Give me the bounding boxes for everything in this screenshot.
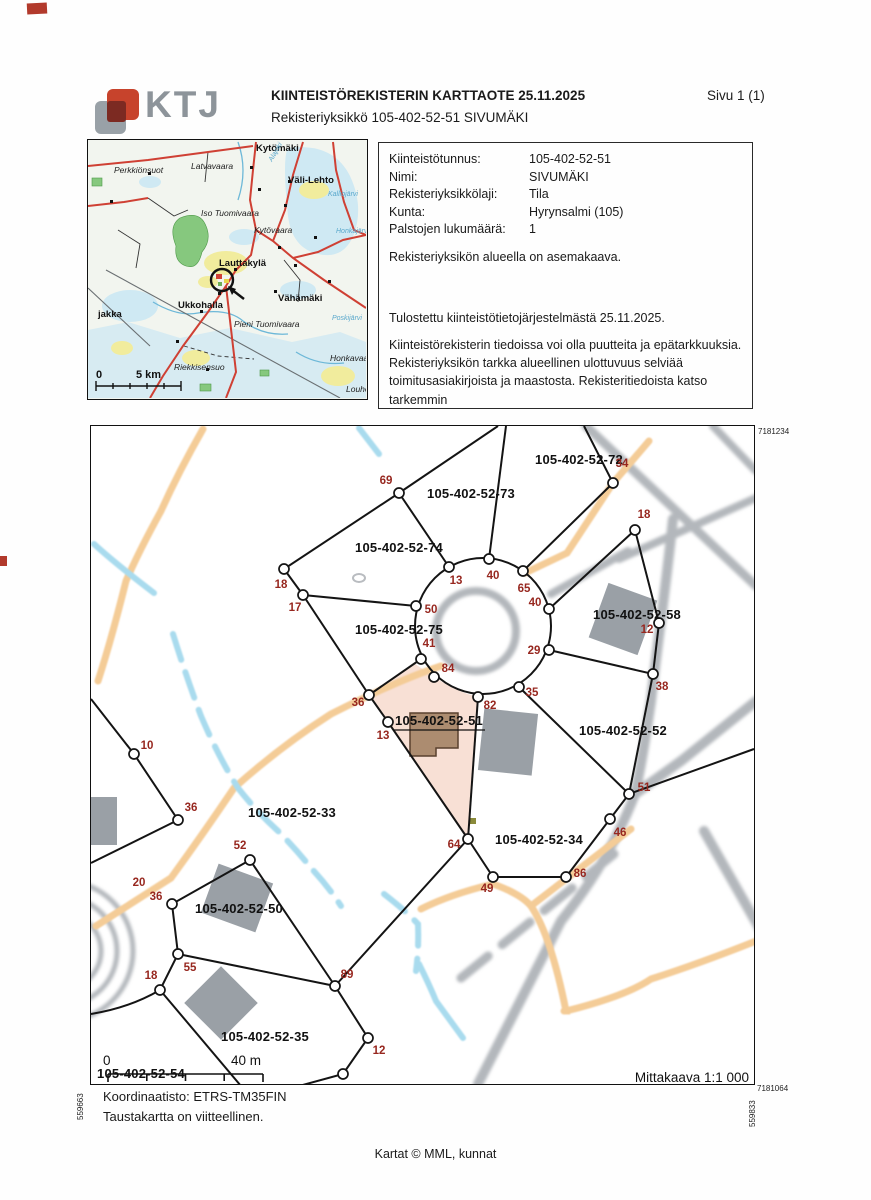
info-value: Hyrynsalmi (105) xyxy=(529,204,623,222)
overview-scale-label: 5 km xyxy=(136,369,161,381)
boundary-marker-number: 64 xyxy=(448,839,461,851)
info-value: Tila xyxy=(529,186,549,204)
cadastral-map: 0 40 m Mittakaava 1:1 000 105-402-52-721… xyxy=(90,425,755,1085)
info-label: Rekisteriyksikkölaji: xyxy=(389,186,529,204)
boundary-marker-number: 38 xyxy=(656,681,669,693)
boundary-marker-number: 40 xyxy=(529,597,542,609)
ktj-logo-overlap xyxy=(107,101,126,122)
boundary-marker-number: 18 xyxy=(275,579,288,591)
boundary-marker-number: 55 xyxy=(184,962,197,974)
place-label: Pieni Tuomivaara xyxy=(234,319,300,329)
info-label: Palstojen lukumäärä: xyxy=(389,221,529,239)
page-number: Sivu 1 (1) xyxy=(707,88,765,103)
building xyxy=(478,708,538,775)
map-credit: Kartat © MML, kunnat xyxy=(0,1147,871,1161)
disclaimer-line: Rekisteriyksikön tarkka alueellinen ulot… xyxy=(389,354,742,372)
info-row: Rekisteriyksikkölaji:Tila xyxy=(389,186,742,204)
boundary-marker-number: 46 xyxy=(614,827,627,839)
parcel-label: 105-402-52-72 xyxy=(535,452,623,467)
parcel-label: 105-402-52-50 xyxy=(195,901,283,916)
place-label: Lauttakylä xyxy=(219,258,267,269)
info-label: Kunta: xyxy=(389,204,529,222)
boundary-marker-number: 18 xyxy=(638,509,651,521)
boundary-marker-number: 17 xyxy=(289,602,302,614)
overview-map-canvas: 0 5 km KytömäkiVäli-LehtoLauttakyläUkkoh… xyxy=(88,140,366,398)
info-value: 1 xyxy=(529,221,536,239)
parcel-label: 105-402-52-75 xyxy=(355,622,443,637)
info-label: Kiinteistötunnus: xyxy=(389,151,529,169)
boundary-marker-number: 13 xyxy=(450,575,463,587)
place-label: Vähämäki xyxy=(278,293,322,304)
boundary-marker-number: 18 xyxy=(145,970,158,982)
boundary-marker-number: 49 xyxy=(481,883,494,895)
boundary-marker-number: 29 xyxy=(528,645,541,657)
property-info-rows: Kiinteistötunnus:105-402-52-51Nimi:SIVUM… xyxy=(389,151,742,239)
map-scale-ratio: Mittakaava 1:1 000 xyxy=(635,1070,749,1084)
info-value: SIVUMÄKI xyxy=(529,169,589,187)
document-title: KIINTEISTÖREKISTERIN KARTTAOTE 25.11.202… xyxy=(271,88,585,103)
boundary-marker-number: 12 xyxy=(641,624,654,636)
document-subtitle: Rekisteriyksikkö 105-402-52-51 SIVUMÄKI xyxy=(271,110,528,125)
water-label: Kalliojärvi xyxy=(328,191,358,198)
printed-note: Tulostettu kiinteistötietojärjestelmästä… xyxy=(389,310,742,328)
building xyxy=(91,797,117,845)
boundary-marker-number: 36 xyxy=(185,802,198,814)
overview-scale-zero: 0 xyxy=(96,369,102,381)
parcel-label: 105-402-52-74 xyxy=(355,540,443,555)
cadastral-map-canvas: 0 40 m Mittakaava 1:1 000 105-402-52-721… xyxy=(91,426,754,1084)
parcel-label: 105-402-52-51 xyxy=(395,713,483,728)
boundary-marker-number: 86 xyxy=(574,868,587,880)
place-label: Riekkisensuo xyxy=(174,362,225,372)
water-label: Poskijärvi xyxy=(332,315,362,322)
coordinate-south: 7181064 xyxy=(757,1084,788,1093)
scan-artifact xyxy=(0,556,7,566)
landmark-dot xyxy=(470,818,476,824)
boundary-marker-number: 69 xyxy=(380,475,393,487)
parcel-label: 105-402-52-58 xyxy=(593,607,681,622)
overview-map: 0 5 km KytömäkiVäli-LehtoLauttakyläUkkoh… xyxy=(87,139,368,400)
place-label: Ukkohalla xyxy=(178,300,224,311)
coordinate-north: 7181234 xyxy=(758,427,789,436)
ktj-logo-text: KTJ xyxy=(145,84,221,126)
info-row: Kunta:Hyrynsalmi (105) xyxy=(389,204,742,222)
place-label: Kytövaara xyxy=(254,225,293,235)
disclaimer-text: Kiinteistörekisterin tiedoissa voi olla … xyxy=(389,336,742,410)
building xyxy=(201,864,273,933)
place-label: Honkavaara xyxy=(330,353,366,363)
disclaimer-line: toimitusasiakirjoista ja maastosta. Reki… xyxy=(389,372,742,409)
place-label: jakka xyxy=(97,309,122,320)
boundary-marker-number: 13 xyxy=(377,730,390,742)
boundary-marker-number: 82 xyxy=(484,700,497,712)
place-label: Iso Tuomivaara xyxy=(201,208,259,218)
boundary-marker-number: 89 xyxy=(341,969,354,981)
boundary-marker-number: 50 xyxy=(425,604,438,616)
info-row: Nimi:SIVUMÄKI xyxy=(389,169,742,187)
info-row: Kiinteistötunnus:105-402-52-51 xyxy=(389,151,742,169)
boundary-marker-number: 36 xyxy=(150,891,163,903)
parcel-label: 105-402-52-33 xyxy=(248,805,336,820)
map-scale-label: 40 m xyxy=(231,1053,261,1068)
basemap-note: Taustakartta on viitteellinen. xyxy=(103,1109,263,1124)
page: KTJ KIINTEISTÖREKISTERIN KARTTAOTE 25.11… xyxy=(0,0,871,1200)
boundary-marker-number: 65 xyxy=(518,583,531,595)
coordinate-system-note: Koordinaatisto: ETRS-TM35FIN xyxy=(103,1089,287,1104)
boundary-marker-number: 40 xyxy=(487,570,500,582)
property-info-box: Kiinteistötunnus:105-402-52-51Nimi:SIVUM… xyxy=(378,142,753,409)
place-label: Latvavaara xyxy=(191,161,233,171)
parcel-label: 105-402-52-52 xyxy=(579,723,667,738)
place-label: Louhens xyxy=(346,384,366,394)
coordinate-east: 559833 xyxy=(748,1100,757,1127)
boundary-marker-number: 20 xyxy=(133,877,146,889)
boundary-marker-number: 51 xyxy=(638,782,651,794)
boundary-marker-number: 12 xyxy=(373,1045,386,1057)
place-label: Väli-Lehto xyxy=(288,175,334,186)
info-row: Palstojen lukumäärä:1 xyxy=(389,221,742,239)
boundary-marker-number: 35 xyxy=(526,687,539,699)
contour-mark xyxy=(353,574,365,582)
info-label: Nimi: xyxy=(389,169,529,187)
parcel-label: 105-402-52-34 xyxy=(495,832,583,847)
info-value: 105-402-52-51 xyxy=(529,151,611,169)
coordinate-west: 559663 xyxy=(76,1093,85,1120)
parcel-label: 105-402-52-54 xyxy=(97,1066,185,1081)
boundary-marker-number: 34 xyxy=(616,458,629,470)
zoning-note: Rekisteriyksikön alueella on asemakaava. xyxy=(389,249,742,267)
water-label: Honkajärvi xyxy=(336,228,366,235)
boundary-marker-number: 10 xyxy=(141,740,154,752)
boundary-marker-number: 41 xyxy=(423,638,436,650)
boundary-marker-number: 84 xyxy=(442,663,455,675)
place-label: Perkkiönsuot xyxy=(114,165,164,175)
parcel-label: 105-402-52-73 xyxy=(427,486,515,501)
boundary-marker-number: 36 xyxy=(352,697,365,709)
boundary-marker-number: 52 xyxy=(234,840,247,852)
parcel-label: 105-402-52-35 xyxy=(221,1029,309,1044)
disclaimer-line: Kiinteistörekisterin tiedoissa voi olla … xyxy=(389,336,742,354)
scan-artifact xyxy=(27,2,48,14)
